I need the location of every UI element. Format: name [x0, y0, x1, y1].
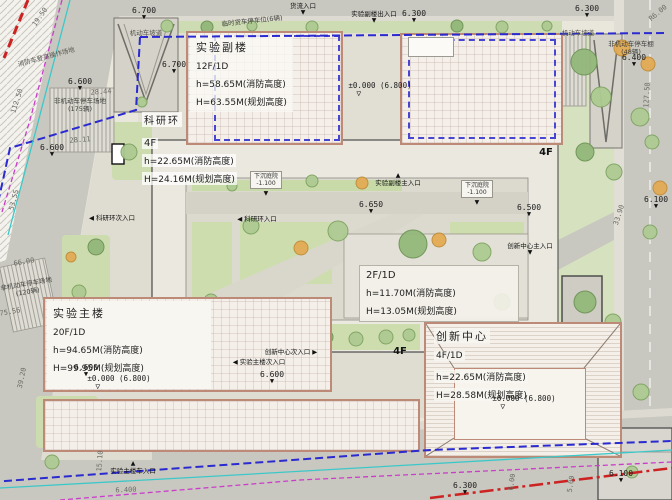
innovation-fire-height: h=22.65M(消防高度) — [434, 370, 528, 383]
main-floors: 20F/1D — [53, 328, 205, 338]
annex-plan-height: H=63.55M(规划高度) — [196, 95, 287, 108]
annex-annotation-box: 实验副楼 12F/1D h=58.65M(消防高度) H=63.55M(规划高度… — [190, 35, 293, 112]
main-name: 实验主楼 — [53, 305, 205, 321]
annex-floors: 12F/1D — [196, 62, 287, 72]
main-plan-height: H=99.95M(规划高度) — [53, 361, 205, 374]
annex-east-rooflight — [408, 37, 454, 57]
building-main-lab-wing — [43, 399, 420, 452]
innovation-name: 创新中心 — [434, 328, 490, 344]
ring-fire-height: h=22.65M(消防高度) — [142, 154, 236, 167]
site-plan-canvas: 实验副楼 12F/1D h=58.65M(消防高度) H=63.55M(规划高度… — [0, 0, 672, 500]
ring-name: 科研环 — [142, 112, 182, 127]
innovation-floors: 4F/1D — [434, 351, 465, 361]
annex-fire-height: h=58.65M(消防高度) — [196, 77, 287, 90]
podium-fire-height: h=11.70M(消防高度) — [366, 286, 512, 299]
ring-floors: 4F — [142, 138, 158, 149]
main-annotation-box: 实验主楼 20F/1D h=94.65M(消防高度) H=99.95M(规划高度… — [47, 301, 211, 389]
ring-plan-height: H=24.16M(规划高度) — [142, 172, 237, 185]
ring-annotation: 科研环 4F h=22.65M(消防高度) H=24.16M(规划高度) — [142, 109, 237, 185]
podium-annotation-box: 2F/1D h=11.70M(消防高度) H=13.05M(规划高度) — [359, 265, 519, 322]
podium-plan-height: H=13.05M(规划高度) — [366, 304, 512, 317]
main-fire-height: h=94.65M(消防高度) — [53, 343, 205, 356]
building-annex-lab-east — [400, 33, 563, 145]
building-main-lab: 实验主楼 20F/1D h=94.65M(消防高度) H=99.95M(规划高度… — [43, 297, 332, 392]
podium-floors: 2F/1D — [366, 270, 512, 281]
building-innovation-center: 创新中心 4F/1D h=22.65M(消防高度) H=28.58M(规划高度) — [424, 322, 622, 458]
innovation-plan-height: H=28.58M(规划高度) — [434, 388, 529, 401]
annex-name: 实验副楼 — [196, 39, 287, 55]
